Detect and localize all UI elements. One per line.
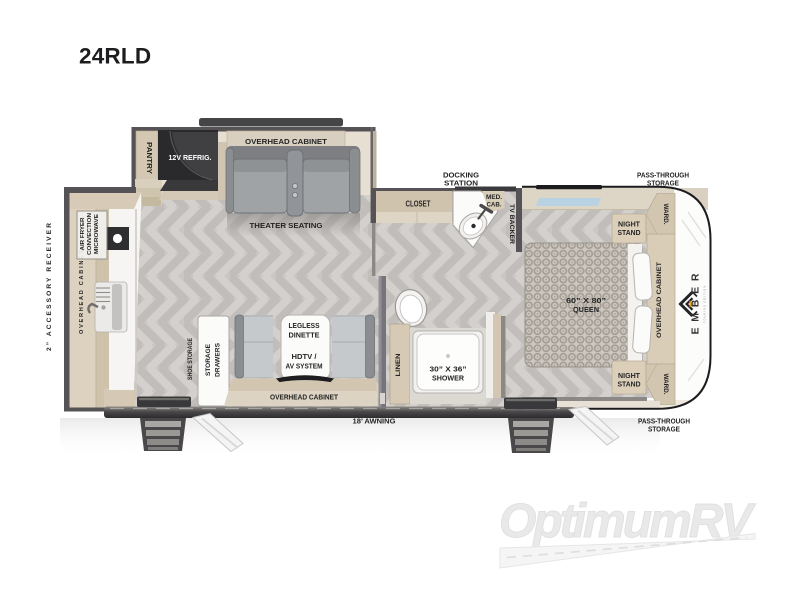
svg-text:STAND: STAND [618,382,641,389]
svg-text:SHOWER: SHOWER [432,376,464,383]
svg-text:NIGHT: NIGHT [618,373,641,380]
svg-text:PANTRY: PANTRY [145,142,152,174]
svg-text:WARD.: WARD. [662,204,669,225]
svg-text:AIR FRYER: AIR FRYER [80,217,86,250]
svg-text:DRAWERS: DRAWERS [215,342,222,377]
svg-text:TOURING EDITION: TOURING EDITION [703,285,707,323]
svg-text:60” X 80”: 60” X 80” [566,298,606,305]
svg-text:STAND: STAND [618,230,641,237]
svg-text:PASS-THROUGH: PASS-THROUGH [638,419,690,426]
svg-text:NIGHT: NIGHT [618,222,641,229]
svg-text:AV SYSTEM: AV SYSTEM [286,362,323,371]
svg-text:CLOSET: CLOSET [406,200,431,209]
svg-text:STORAGE: STORAGE [648,427,680,434]
svg-text:OVERHEAD CABINET: OVERHEAD CABINET [656,262,663,338]
svg-text:STORAGE: STORAGE [205,343,212,376]
svg-text:MICROWAVE: MICROWAVE [94,213,100,254]
svg-text:18’ AWNING: 18’ AWNING [353,417,396,426]
svg-text:OVERHEAD CABINET: OVERHEAD CABINET [79,249,85,334]
svg-text:LEGLESS: LEGLESS [289,321,320,330]
svg-text:LINEN: LINEN [395,353,402,376]
svg-text:HDTV /: HDTV / [292,352,318,361]
svg-text:CAB.: CAB. [487,202,502,209]
svg-text:CONVECTION: CONVECTION [87,213,93,255]
svg-text:OVERHEAD CABINET: OVERHEAD CABINET [270,395,339,402]
svg-text:30” X 36”: 30” X 36” [430,367,467,374]
svg-text:QUEEN: QUEEN [573,307,599,314]
svg-text:OVERHEAD CABINET: OVERHEAD CABINET [245,137,328,146]
svg-text:PASS-THROUGH: PASS-THROUGH [637,173,689,180]
svg-text:24RLD: 24RLD [79,44,151,69]
svg-text:STORAGE: STORAGE [647,181,679,188]
svg-text:MED.: MED. [486,194,502,201]
svg-text:SHOE STORAGE: SHOE STORAGE [188,338,194,380]
svg-text:TV BACKER: TV BACKER [508,204,515,244]
svg-text:DINETTE: DINETTE [289,331,320,340]
svg-text:WARD.: WARD. [662,374,669,395]
svg-text:12V REFRIG.: 12V REFRIG. [169,155,212,162]
svg-text:THEATER SEATING: THEATER SEATING [250,221,323,230]
svg-text:STATION: STATION [444,179,478,188]
